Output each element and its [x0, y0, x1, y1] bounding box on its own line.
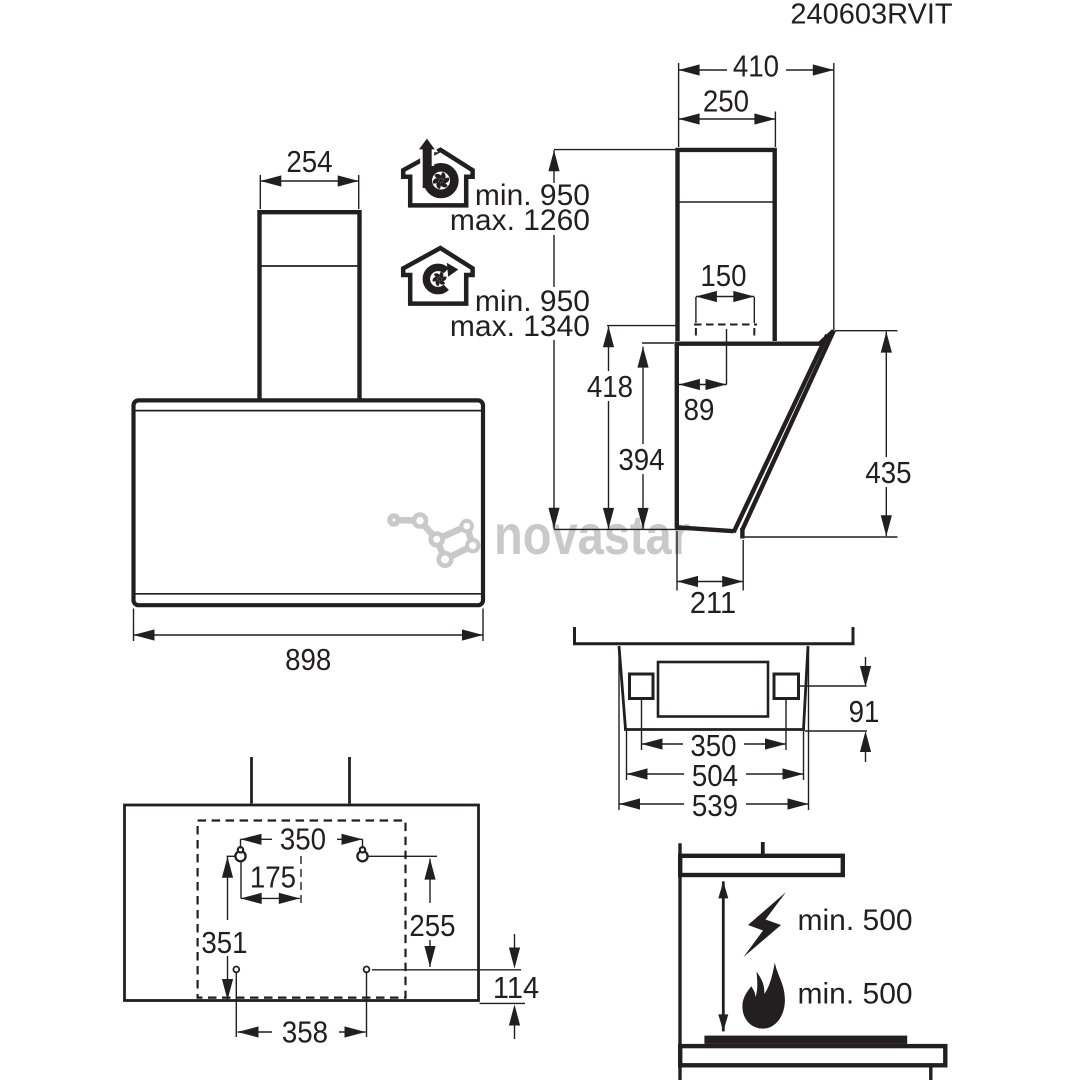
svg-text:89: 89 [684, 392, 715, 427]
svg-text:114: 114 [493, 970, 539, 1005]
svg-text:novastar: novastar [494, 503, 690, 566]
svg-text:91: 91 [849, 694, 880, 729]
svg-text:351: 351 [201, 925, 247, 960]
svg-text:410: 410 [733, 49, 779, 84]
svg-text:394: 394 [618, 442, 664, 477]
svg-text:175: 175 [250, 860, 296, 895]
svg-text:898: 898 [285, 642, 331, 677]
svg-text:max. 1260: max. 1260 [450, 204, 590, 237]
svg-text:255: 255 [409, 908, 455, 943]
svg-text:150: 150 [700, 258, 746, 293]
svg-text:254: 254 [286, 144, 332, 179]
svg-text:211: 211 [690, 585, 736, 620]
svg-text:240603RVIT: 240603RVIT [790, 0, 953, 31]
svg-text:418: 418 [587, 369, 633, 404]
svg-text:539: 539 [692, 788, 738, 823]
svg-text:min. 500: min. 500 [798, 978, 913, 1011]
svg-text:250: 250 [703, 84, 749, 119]
svg-text:435: 435 [865, 455, 911, 490]
svg-text:358: 358 [282, 1015, 328, 1050]
svg-text:max. 1340: max. 1340 [450, 310, 590, 343]
svg-text:350: 350 [280, 822, 326, 857]
svg-text:min. 500: min. 500 [798, 904, 913, 937]
